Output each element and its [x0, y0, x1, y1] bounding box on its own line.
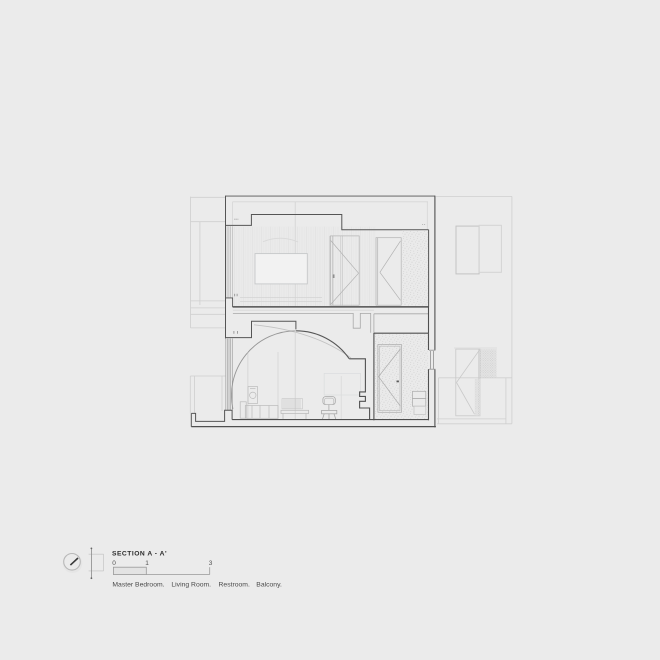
- svg-text:Living Room.: Living Room.: [171, 581, 211, 588]
- svg-text:Master Bedroom.: Master Bedroom.: [112, 581, 164, 588]
- svg-text:Balcony.: Balcony.: [256, 581, 282, 588]
- svg-text:3: 3: [209, 560, 213, 567]
- svg-text:0: 0: [112, 560, 116, 567]
- svg-text:SECTION A - A': SECTION A - A': [112, 550, 167, 557]
- svg-text:Restroom.: Restroom.: [219, 581, 250, 588]
- svg-text:1: 1: [145, 560, 149, 567]
